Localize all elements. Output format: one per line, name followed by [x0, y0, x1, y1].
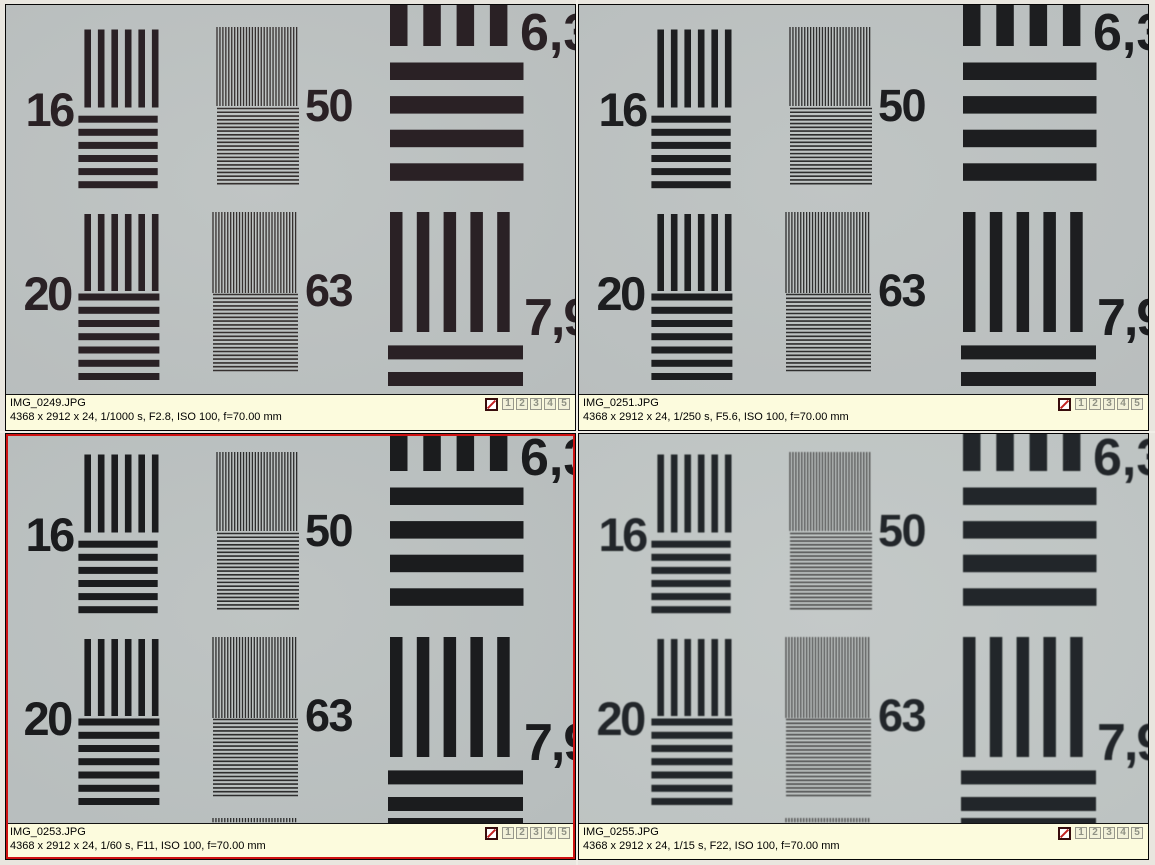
- svg-text:63: 63: [305, 265, 353, 316]
- svg-text:6,3: 6,3: [520, 5, 575, 62]
- svg-text:16: 16: [26, 83, 75, 136]
- svg-text:20: 20: [24, 267, 73, 320]
- svg-text:20: 20: [597, 267, 646, 320]
- svg-text:50: 50: [305, 80, 353, 131]
- svg-text:7,9: 7,9: [524, 289, 575, 347]
- svg-text:6,3: 6,3: [1093, 5, 1148, 62]
- svg-text:16: 16: [599, 508, 648, 561]
- svg-text:50: 50: [878, 505, 926, 556]
- svg-text:63: 63: [878, 265, 926, 316]
- svg-text:7,9: 7,9: [1097, 289, 1148, 347]
- svg-text:16: 16: [599, 83, 648, 136]
- svg-text:6,3: 6,3: [1093, 434, 1148, 487]
- svg-text:50: 50: [878, 80, 926, 131]
- svg-text:7,9: 7,9: [1097, 714, 1148, 772]
- svg-text:63: 63: [878, 690, 926, 741]
- svg-text:20: 20: [597, 692, 646, 745]
